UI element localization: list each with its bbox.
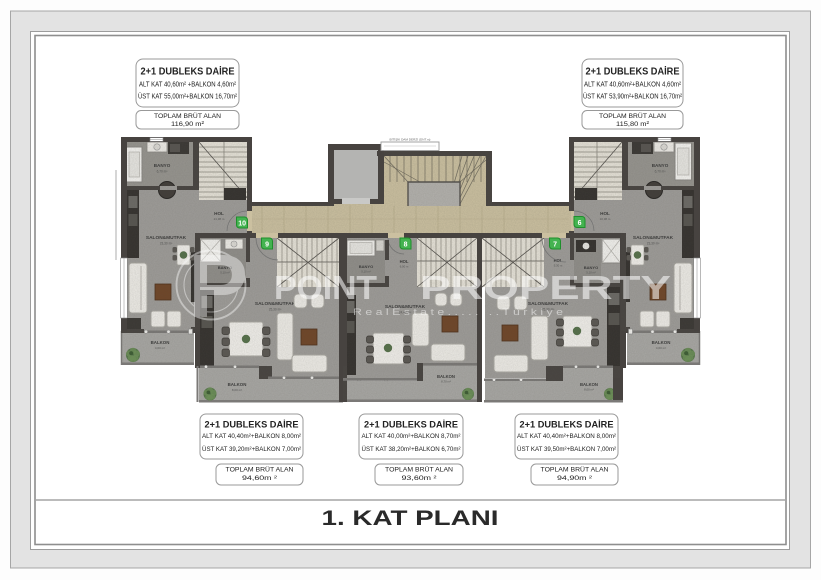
svg-text:ÜST KAT 39,50m²+BALKON 7,00m²: ÜST KAT 39,50m²+BALKON 7,00m² [517,445,616,453]
svg-text:ÜST KAT 55,00m²+BALKON 16,70m²: ÜST KAT 55,00m²+BALKON 16,70m² [138,93,238,101]
svg-text:2+1 DUBLEKS DAİRE: 2+1 DUBLEKS DAİRE [364,420,458,430]
svg-text:TOPLAM BRÜT ALAN: TOPLAM BRÜT ALAN [541,466,609,474]
svg-text:ÜST KAT 38,20m²+BALKON 6,70m²: ÜST KAT 38,20m²+BALKON 6,70m² [362,445,461,453]
svg-text:TOPLAM BRÜT ALAN: TOPLAM BRÜT ALAN [226,466,294,474]
svg-text:TOPLAM BRÜT ALAN: TOPLAM BRÜT ALAN [154,112,221,120]
svg-text:R e a l E s t a t e . . . .: R e a l E s t a t e . . . . . . . . T ü … [353,307,563,317]
svg-text:7: 7 [553,242,557,249]
svg-text:ALT KAT 40,60m²+BALKON 4,60m²: ALT KAT 40,60m²+BALKON 4,60m² [584,82,682,89]
svg-text:9: 9 [265,242,269,249]
svg-text:PROPERTY: PROPERTY [420,269,671,306]
svg-text:POINT: POINT [274,269,377,306]
svg-text:116,90 m²: 116,90 m² [171,121,205,128]
svg-text:6: 6 [578,220,582,227]
svg-text:2+1 DUBLEKS DAİRE: 2+1 DUBLEKS DAİRE [520,420,614,430]
svg-text:ALT KAT 40,00m²+BALKON 8,70m²: ALT KAT 40,00m²+BALKON 8,70m² [362,433,461,440]
svg-text:94,90m ²: 94,90m ² [557,475,592,482]
svg-text:93,60m ²: 93,60m ² [402,475,437,482]
svg-text:2+1 DUBLEKS DAİRE: 2+1 DUBLEKS DAİRE [586,65,680,78]
svg-text:94,60m ²: 94,60m ² [242,475,277,482]
svg-text:2+1 DUBLEKS DAİRE: 2+1 DUBLEKS DAİRE [141,65,235,78]
svg-text:ÜST KAT 53,90m²+BALKON 16,70m²: ÜST KAT 53,90m²+BALKON 16,70m² [583,93,683,101]
svg-text:BİTİŞİK DAM DERZİ (DNT.m): BİTİŞİK DAM DERZİ (DNT.m) [390,137,431,142]
svg-text:ALT KAT 40,40m²+BALKON 8,00m²: ALT KAT 40,40m²+BALKON 8,00m² [202,433,301,440]
svg-text:P: P [188,237,248,337]
svg-text:115,80 m²: 115,80 m² [616,121,650,128]
svg-text:ALT KAT 40,60m² +BALKON 4,60m: ALT KAT 40,60m² +BALKON 4,60m² [139,82,237,89]
svg-text:8: 8 [404,242,408,249]
svg-text:10: 10 [238,221,246,228]
svg-text:1. KAT PLANI: 1. KAT PLANI [322,507,499,530]
svg-text:TOPLAM BRÜT ALAN: TOPLAM BRÜT ALAN [599,112,666,120]
svg-text:2+1 DUBLEKS DAİRE: 2+1 DUBLEKS DAİRE [205,420,299,430]
svg-text:ALT KAT 40,40m²+BALKON 8,00m²: ALT KAT 40,40m²+BALKON 8,00m² [517,433,616,440]
svg-text:ÜST KAT 39,20m²+BALKON 7,00m²: ÜST KAT 39,20m²+BALKON 7,00m² [202,445,301,453]
svg-text:TOPLAM BRÜT ALAN: TOPLAM BRÜT ALAN [385,466,453,474]
